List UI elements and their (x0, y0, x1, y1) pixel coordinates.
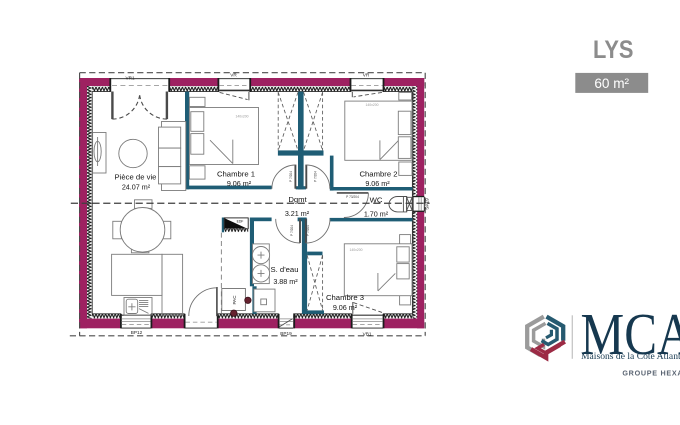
svg-text:Chambre 2: Chambre 2 (359, 170, 397, 179)
svg-text:9.06 m²: 9.06 m² (365, 179, 390, 188)
svg-text:GROUPE HEXAÔM: GROUPE HEXAÔM (622, 368, 680, 377)
svg-text:Chambre 3: Chambre 3 (326, 293, 364, 302)
svg-text:140x200: 140x200 (235, 115, 248, 119)
svg-text:S. d'eau: S. d'eau (271, 265, 299, 274)
svg-text:WC: WC (370, 195, 383, 204)
svg-text:VB1: VB1 (363, 331, 372, 336)
svg-text:P 7/204: P 7/204 (289, 171, 293, 182)
svg-text:SP19: SP19 (425, 198, 430, 210)
svg-text:9.06 m²: 9.06 m² (333, 303, 358, 312)
svg-text:VR: VR (363, 72, 370, 77)
svg-text:P 7/204: P 7/204 (290, 225, 294, 236)
svg-text:BP19: BP19 (280, 331, 292, 336)
svg-text:P 73/204: P 73/204 (346, 195, 359, 199)
svg-text:VR: VR (230, 72, 237, 77)
svg-text:3.21 m²: 3.21 m² (285, 209, 310, 218)
svg-text:24.07 m²: 24.07 m² (122, 183, 151, 192)
svg-text:PAC: PAC (232, 295, 237, 305)
svg-text:LYS: LYS (593, 36, 634, 64)
svg-text:Dgmt: Dgmt (288, 195, 307, 204)
svg-text:P 7/204: P 7/204 (313, 171, 317, 182)
svg-text:60 m²: 60 m² (594, 76, 629, 91)
svg-text:BP12: BP12 (131, 330, 143, 335)
svg-text:140x200: 140x200 (349, 248, 362, 252)
svg-text:Chambre 1: Chambre 1 (217, 170, 255, 179)
svg-text:Pièce de vie: Pièce de vie (115, 173, 157, 182)
svg-text:3.88 m²: 3.88 m² (273, 277, 298, 286)
svg-text:EDF: EDF (237, 219, 244, 223)
svg-text:P 7/204: P 7/204 (306, 225, 310, 236)
svg-text:9.06 m²: 9.06 m² (227, 179, 252, 188)
svg-text:VR1: VR1 (125, 76, 135, 81)
svg-text:1.70 m²: 1.70 m² (364, 209, 389, 218)
svg-text:140x200: 140x200 (365, 103, 378, 107)
svg-text:Maisons de la Côte Atlantique: Maisons de la Côte Atlantique (581, 351, 680, 362)
